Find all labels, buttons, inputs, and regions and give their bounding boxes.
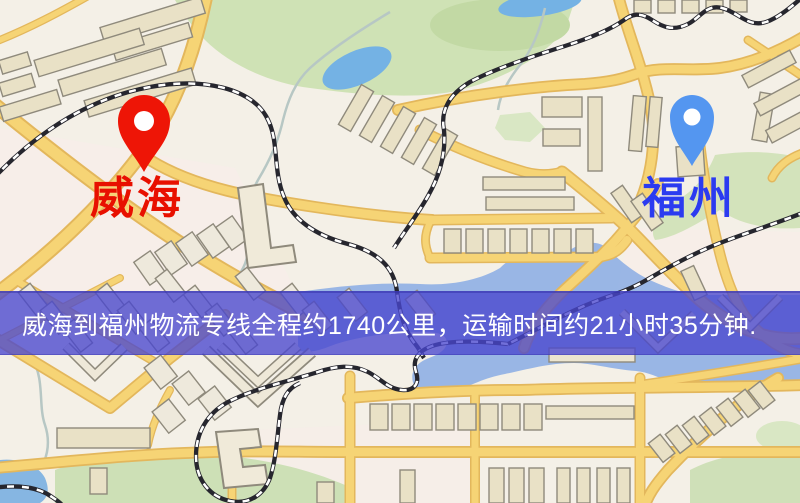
destination-city-label: 福州 — [642, 177, 736, 221]
route-info-text: 威海到福州物流专线全程约1740公里，运输时间约21小时35分钟. — [0, 306, 757, 342]
map-screenshot: 威海 福州 威海到福州物流专线全程约1740公里，运输时间约21小时35分钟. — [0, 0, 800, 503]
origin-city-label: 威海 — [90, 177, 184, 221]
route-info-banner: 威海到福州物流专线全程约1740公里，运输时间约21小时35分钟. — [0, 291, 800, 355]
map-canvas[interactable] — [0, 0, 800, 503]
